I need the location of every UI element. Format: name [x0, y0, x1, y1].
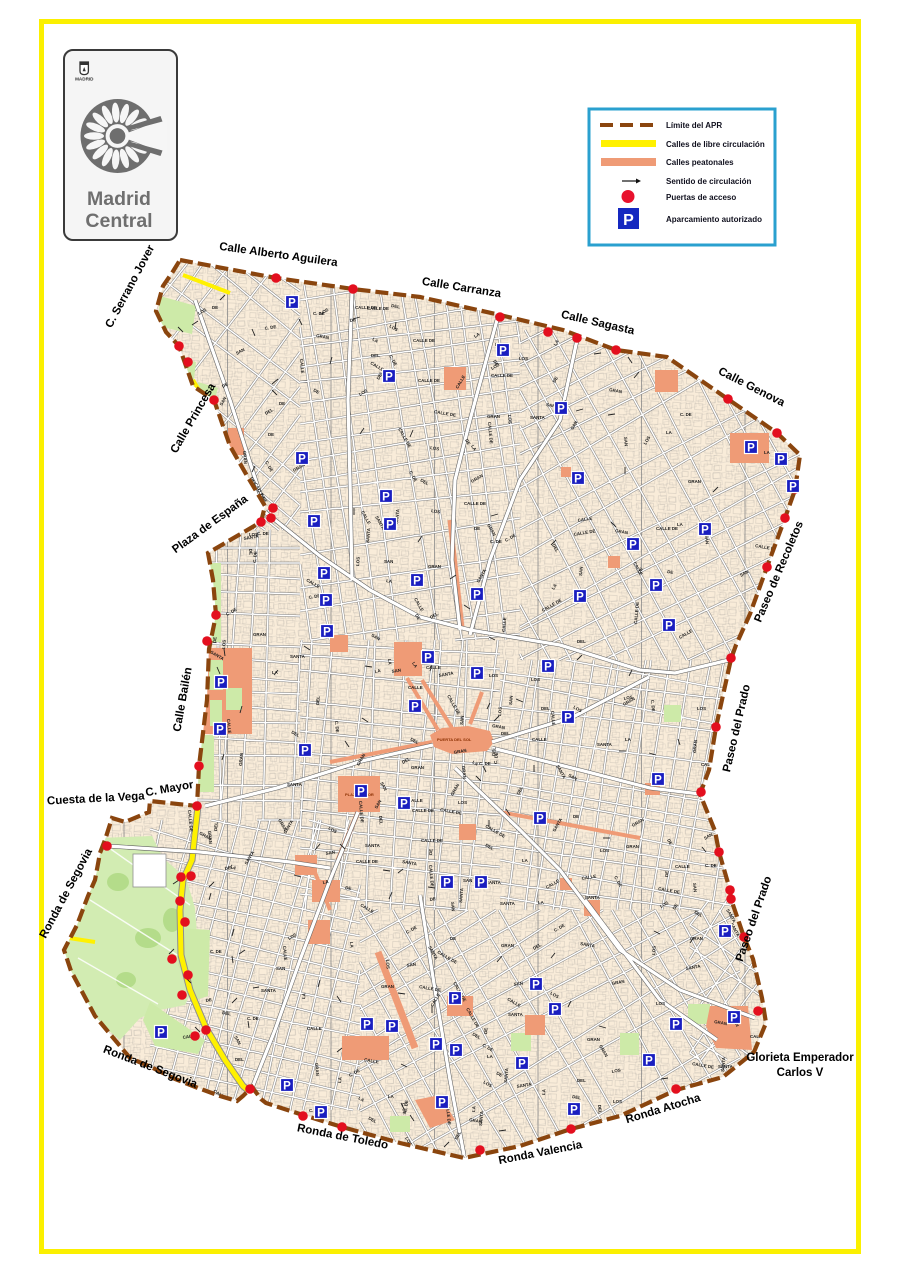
svg-text:GRAN: GRAN: [411, 765, 424, 770]
svg-text:LOS: LOS: [385, 960, 391, 969]
svg-text:DEL: DEL: [597, 1105, 603, 1115]
svg-text:LOS: LOS: [519, 356, 528, 361]
svg-text:SANTA: SANTA: [287, 782, 303, 787]
svg-text:P: P: [413, 575, 421, 587]
svg-text:P: P: [551, 1004, 559, 1016]
svg-text:CALLE: CALLE: [532, 737, 547, 742]
svg-text:P: P: [532, 979, 540, 991]
svg-text:CALLE DE: CALLE DE: [412, 808, 434, 813]
svg-text:P: P: [363, 1019, 371, 1031]
svg-text:GRAN: GRAN: [381, 984, 394, 989]
svg-text:P: P: [473, 589, 481, 601]
svg-text:GRAN: GRAN: [587, 1037, 600, 1042]
svg-text:DE: DE: [205, 997, 212, 1003]
svg-text:P: P: [400, 798, 408, 810]
svg-text:SANTA: SANTA: [261, 988, 277, 993]
svg-text:C. DE: C. DE: [490, 539, 502, 544]
svg-text:C. DE: C. DE: [403, 1100, 409, 1112]
svg-text:LOS: LOS: [507, 415, 513, 424]
svg-text:Puertas de acceso: Puertas de acceso: [666, 193, 736, 202]
svg-text:P: P: [288, 297, 296, 309]
svg-text:LOS: LOS: [497, 707, 503, 716]
svg-text:LOS: LOS: [531, 677, 540, 682]
svg-text:SAN: SAN: [384, 559, 393, 564]
svg-text:LA: LA: [522, 858, 529, 863]
svg-text:SAN: SAN: [450, 902, 456, 912]
svg-text:DEL: DEL: [491, 747, 497, 757]
svg-text:DEL: DEL: [577, 639, 586, 644]
svg-text:P: P: [388, 1021, 396, 1033]
svg-text:P: P: [310, 516, 318, 528]
svg-text:SANTA: SANTA: [530, 415, 546, 420]
svg-text:P: P: [789, 481, 797, 493]
svg-text:DEL: DEL: [501, 731, 510, 736]
svg-text:CALLE: CALLE: [426, 665, 441, 670]
svg-text:LA: LA: [677, 522, 684, 527]
svg-text:SANTA: SANTA: [500, 901, 516, 906]
svg-text:P: P: [320, 568, 328, 580]
svg-text:Aparcamiento autorizado: Aparcamiento autorizado: [666, 215, 762, 224]
svg-text:Madrid: Madrid: [87, 188, 151, 210]
svg-text:P: P: [298, 453, 306, 465]
svg-text:P: P: [499, 345, 507, 357]
svg-text:LOS: LOS: [458, 800, 467, 805]
svg-text:C. DE: C. DE: [210, 949, 222, 954]
svg-text:DE: DE: [212, 305, 218, 310]
svg-text:P: P: [557, 403, 565, 415]
svg-text:P: P: [323, 626, 331, 638]
svg-text:C. DE: C. DE: [680, 412, 692, 417]
svg-text:P: P: [217, 677, 225, 689]
svg-text:LOS: LOS: [221, 640, 227, 649]
svg-text:P: P: [721, 926, 729, 938]
svg-text:DE: DE: [428, 849, 434, 856]
svg-text:SANTA: SANTA: [486, 880, 502, 885]
svg-text:CALLE DE: CALLE DE: [656, 526, 678, 531]
svg-text:P: P: [654, 774, 662, 786]
svg-text:P: P: [301, 745, 309, 757]
svg-text:DE: DE: [474, 526, 480, 531]
svg-text:DE: DE: [349, 317, 356, 323]
svg-text:P: P: [322, 595, 330, 607]
svg-text:GRAN: GRAN: [688, 479, 701, 484]
svg-text:DEL: DEL: [371, 353, 380, 358]
svg-text:LA: LA: [538, 900, 545, 905]
svg-text:CALLE: CALLE: [408, 685, 423, 690]
svg-text:P: P: [452, 1045, 460, 1057]
svg-text:LOS: LOS: [489, 673, 498, 678]
svg-text:DEL: DEL: [541, 706, 550, 711]
svg-text:SAN: SAN: [623, 437, 629, 447]
svg-text:DE: DE: [212, 637, 218, 644]
svg-text:GRAN: GRAN: [428, 564, 441, 569]
svg-text:LA: LA: [764, 450, 771, 455]
svg-text:P: P: [443, 877, 451, 889]
svg-text:SAN: SAN: [459, 715, 465, 725]
svg-text:P: P: [652, 580, 660, 592]
svg-text:P: P: [385, 371, 393, 383]
svg-text:P: P: [777, 454, 785, 466]
svg-text:DE: DE: [450, 936, 456, 941]
svg-text:P: P: [574, 473, 582, 485]
svg-text:P: P: [157, 1027, 165, 1039]
svg-text:CALLE: CALLE: [307, 1026, 322, 1031]
svg-text:LOS: LOS: [355, 557, 361, 566]
svg-text:P: P: [645, 1055, 653, 1067]
svg-text:LOS: LOS: [613, 1099, 622, 1104]
svg-text:DE: DE: [429, 896, 436, 902]
svg-text:P: P: [623, 212, 634, 229]
svg-text:SANTA: SANTA: [585, 895, 601, 900]
svg-text:DEL: DEL: [577, 1078, 586, 1083]
svg-text:CALLE DE: CALLE DE: [421, 838, 443, 843]
svg-text:Carlos V: Carlos V: [777, 1067, 824, 1079]
svg-text:CALLE DE: CALLE DE: [367, 306, 389, 311]
svg-text:CALLE DE: CALLE DE: [356, 859, 378, 864]
svg-text:P: P: [544, 661, 552, 673]
svg-text:SANTA: SANTA: [290, 654, 306, 659]
svg-text:P: P: [536, 813, 544, 825]
svg-text:P: P: [665, 620, 673, 632]
svg-text:P: P: [564, 712, 572, 724]
svg-text:SANTA: SANTA: [597, 742, 613, 747]
svg-text:P: P: [747, 442, 755, 454]
svg-text:DE: DE: [483, 1028, 489, 1035]
svg-text:LOS: LOS: [656, 1001, 665, 1006]
svg-text:P: P: [216, 724, 224, 736]
svg-text:CALLE: CALLE: [675, 864, 690, 869]
svg-text:LOS: LOS: [600, 848, 609, 853]
svg-text:SAN: SAN: [276, 966, 285, 971]
svg-text:P: P: [518, 1058, 526, 1070]
svg-text:DE: DE: [268, 432, 274, 437]
svg-text:DE: DE: [573, 814, 579, 819]
svg-text:CALLE DE: CALLE DE: [413, 338, 435, 343]
svg-text:DEL: DEL: [235, 1057, 244, 1062]
svg-text:P: P: [672, 1019, 680, 1031]
svg-text:C. DE: C. DE: [650, 700, 656, 712]
svg-text:PUERTA DEL SOL: PUERTA DEL SOL: [437, 737, 472, 742]
svg-text:P: P: [317, 1107, 325, 1119]
svg-text:P: P: [283, 1080, 291, 1092]
svg-text:SAN: SAN: [463, 878, 472, 883]
svg-text:CALLE DE: CALLE DE: [418, 378, 440, 383]
svg-text:DEL: DEL: [213, 822, 219, 832]
svg-text:DE: DE: [664, 871, 670, 878]
svg-text:Límite del APR: Límite del APR: [666, 121, 722, 130]
svg-text:DEL: DEL: [378, 816, 384, 826]
svg-text:P: P: [357, 786, 365, 798]
svg-text:LA: LA: [666, 430, 673, 435]
svg-text:P: P: [473, 668, 481, 680]
svg-text:P: P: [451, 993, 459, 1005]
svg-text:P: P: [411, 701, 419, 713]
svg-text:DE: DE: [345, 885, 352, 891]
svg-text:DEL: DEL: [315, 696, 321, 706]
svg-text:DE: DE: [279, 401, 285, 406]
svg-text:CALLE DE: CALLE DE: [464, 501, 486, 506]
svg-text:LOS: LOS: [697, 706, 706, 711]
svg-text:C. DE: C. DE: [705, 863, 717, 868]
svg-text:GRAN: GRAN: [501, 943, 514, 948]
svg-text:SAN: SAN: [578, 566, 584, 576]
svg-text:LA: LA: [487, 1054, 494, 1059]
svg-text:SAN: SAN: [692, 883, 698, 893]
svg-text:C. DE: C. DE: [334, 721, 340, 733]
svg-text:Glorieta Emperador: Glorieta Emperador: [746, 1052, 854, 1064]
svg-text:LOS: LOS: [651, 946, 657, 955]
svg-text:P: P: [730, 1012, 738, 1024]
svg-text:MADRID: MADRID: [75, 77, 94, 82]
svg-text:P: P: [432, 1039, 440, 1051]
svg-text:P: P: [438, 1097, 446, 1109]
svg-text:C. DE: C. DE: [252, 551, 258, 563]
svg-text:P: P: [386, 519, 394, 531]
svg-text:P: P: [382, 491, 390, 503]
svg-text:Calles de libre circulación: Calles de libre circulación: [666, 140, 765, 149]
svg-text:GRAN: GRAN: [626, 844, 639, 849]
svg-text:SANTA: SANTA: [508, 1012, 524, 1017]
svg-text:GRAN: GRAN: [487, 414, 500, 419]
svg-text:DE: DE: [667, 569, 674, 575]
svg-text:Calles peatonales: Calles peatonales: [666, 158, 734, 167]
svg-text:P: P: [570, 1104, 578, 1116]
svg-text:GRAN: GRAN: [253, 632, 266, 637]
svg-text:LA: LA: [625, 737, 632, 742]
svg-text:Central: Central: [85, 210, 152, 232]
svg-text:P: P: [424, 652, 432, 664]
svg-text:LA: LA: [388, 1094, 395, 1099]
svg-text:Sentido de circulación: Sentido de circulación: [666, 177, 751, 186]
svg-text:P: P: [477, 877, 485, 889]
svg-text:C. DE: C. DE: [257, 531, 269, 536]
svg-text:C. DE: C. DE: [479, 761, 491, 766]
svg-text:CALLE DE: CALLE DE: [491, 373, 513, 378]
svg-text:P: P: [629, 539, 637, 551]
svg-text:C. DE: C. DE: [247, 1016, 259, 1021]
svg-text:P: P: [576, 591, 584, 603]
svg-text:SAN: SAN: [508, 695, 514, 705]
svg-text:P: P: [701, 524, 709, 536]
svg-text:SANTA: SANTA: [365, 843, 381, 848]
